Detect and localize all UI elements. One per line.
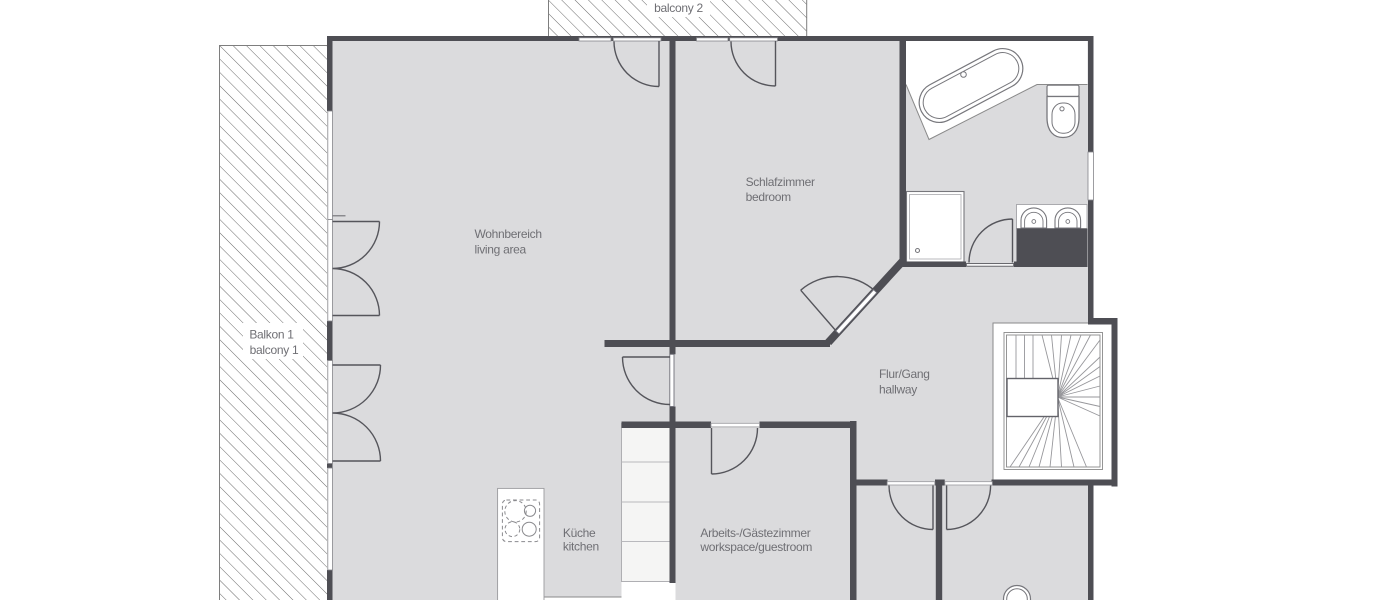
svg-text:kitchen: kitchen — [563, 540, 599, 554]
svg-text:balcony 2: balcony 2 — [654, 1, 703, 15]
svg-text:Balkon 1: Balkon 1 — [249, 328, 294, 342]
svg-text:bedroom: bedroom — [746, 190, 792, 204]
svg-text:Schlafzimmer: Schlafzimmer — [746, 175, 815, 189]
svg-text:Arbeits-/Gästezimmer: Arbeits-/Gästezimmer — [700, 526, 810, 540]
svg-text:Flur/Gang: Flur/Gang — [879, 367, 930, 381]
svg-text:living area: living area — [475, 242, 527, 256]
svg-text:Wohnbereich: Wohnbereich — [475, 227, 542, 241]
svg-text:Küche: Küche — [563, 526, 596, 540]
svg-text:hallway: hallway — [879, 382, 917, 396]
svg-text:balcony 1: balcony 1 — [250, 343, 299, 357]
svg-text:workspace/guestroom: workspace/guestroom — [699, 540, 812, 554]
